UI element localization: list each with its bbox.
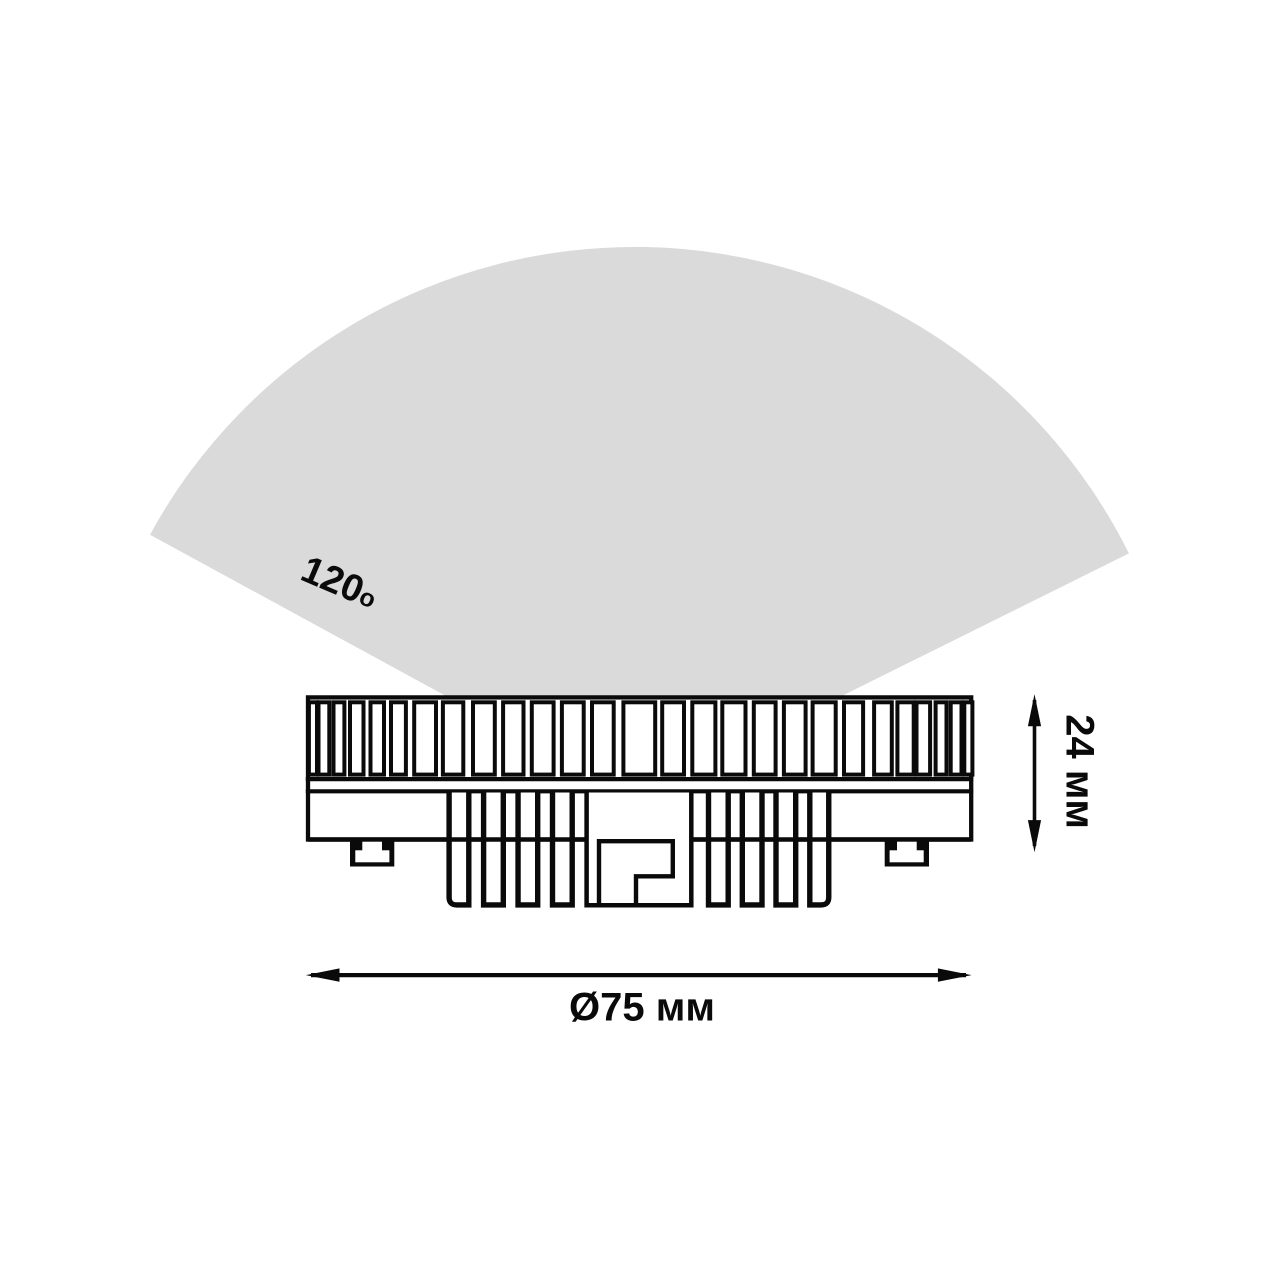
svg-text:24 мм: 24 мм — [1058, 714, 1102, 829]
svg-text:Ø75 мм: Ø75 мм — [569, 986, 715, 1030]
